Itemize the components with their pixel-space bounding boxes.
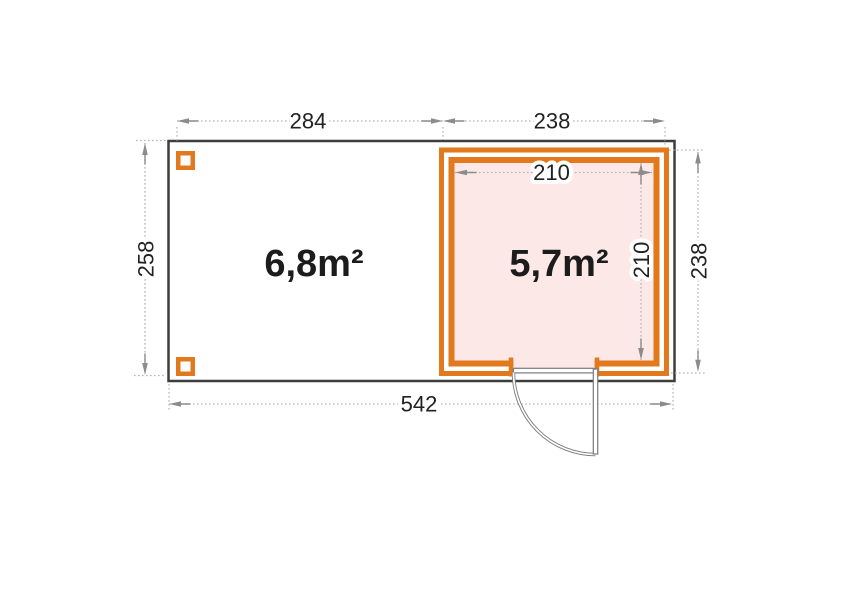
dimension-label-inner-height: 210: [629, 242, 654, 279]
dimension-label-right-height: 238: [687, 243, 712, 280]
door-threshold: [513, 368, 595, 373]
dimension-label-total-width: 542: [401, 392, 438, 417]
arrow-left: [169, 401, 191, 407]
corner-post-bottom-left: [178, 359, 193, 374]
corner-post-top-left: [178, 153, 193, 168]
door-opening-floor: [513, 356, 594, 368]
floor-plan-drawing: 284 238 258 238 210 210 542 6,8m² 5,7m²: [0, 0, 842, 596]
dimension-label-top-right-width: 238: [534, 109, 571, 134]
area-label-right-room: 5,7m²: [509, 243, 608, 285]
arrow-right: [422, 118, 444, 124]
arrow-up: [695, 152, 701, 174]
dimension-label-inner-width: 210: [533, 160, 570, 185]
arrow-right: [644, 118, 666, 124]
arrow-right: [651, 401, 673, 407]
arrow-down: [695, 350, 701, 372]
floor-plan-canvas: 284 238 258 238 210 210 542 6,8m² 5,7m²: [0, 0, 842, 596]
dimension-label-left-height: 258: [134, 241, 159, 278]
arrow-up: [142, 143, 148, 165]
area-label-left-room: 6,8m²: [264, 243, 363, 285]
dimension-label-top-left-width: 284: [290, 109, 327, 134]
door-swing-arc: [514, 373, 596, 455]
door-leaf: [593, 369, 597, 454]
arrow-left: [443, 118, 465, 124]
arrow-left: [177, 118, 199, 124]
arrow-down: [142, 354, 148, 376]
